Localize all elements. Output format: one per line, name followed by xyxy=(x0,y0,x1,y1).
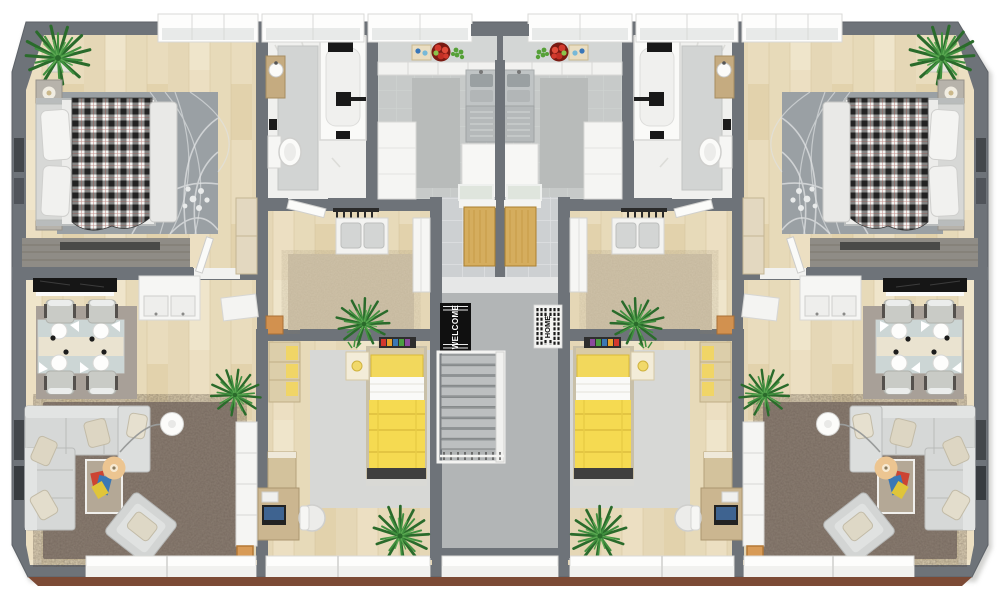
svg-text:HOME: HOME xyxy=(543,316,552,339)
svg-text:WELCOME: WELCOME xyxy=(451,304,460,349)
